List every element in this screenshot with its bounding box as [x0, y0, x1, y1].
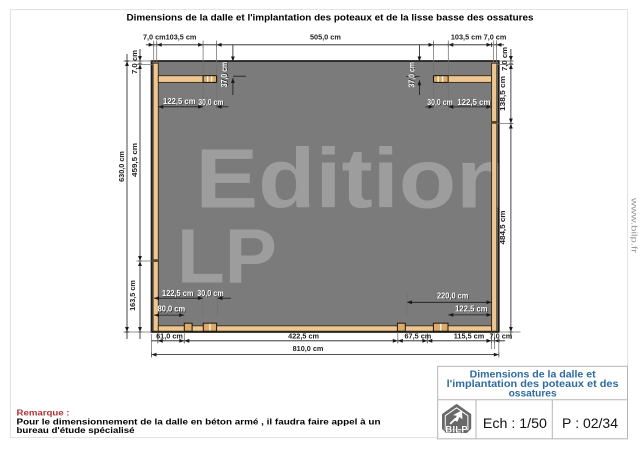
svg-text:37,0 cm: 37,0 cm — [407, 62, 416, 88]
svg-text:138,5 cm: 138,5 cm — [498, 75, 507, 111]
svg-text:459,5 cm: 459,5 cm — [130, 142, 139, 177]
svg-text:163,5 cm: 163,5 cm — [128, 280, 137, 311]
svg-text:61,0 cm: 61,0 cm — [156, 331, 183, 340]
svg-text:122,5 cm: 122,5 cm — [457, 98, 490, 107]
svg-text:7,0 cm: 7,0 cm — [143, 32, 166, 41]
svg-text:Remarque :: Remarque : — [17, 407, 70, 417]
svg-text:7,0 cm: 7,0 cm — [484, 32, 507, 41]
svg-text:P : 02/34: P : 02/34 — [562, 416, 619, 431]
svg-text:122,5 cm: 122,5 cm — [162, 289, 194, 298]
svg-text:630,0 cm: 630,0 cm — [117, 151, 126, 182]
svg-text:Ech : 1/50: Ech : 1/50 — [483, 416, 547, 431]
svg-text:80,0 cm: 80,0 cm — [158, 305, 186, 314]
svg-text:7,0 cm: 7,0 cm — [130, 49, 139, 74]
svg-text:30,0 cm: 30,0 cm — [198, 98, 223, 107]
svg-text:422,5 cm: 422,5 cm — [288, 331, 319, 340]
svg-text:LP: LP — [177, 214, 277, 300]
svg-text:103,5 cm: 103,5 cm — [166, 32, 197, 41]
svg-text:484,5 cm: 484,5 cm — [498, 210, 507, 245]
svg-text:30,0 cm: 30,0 cm — [427, 98, 453, 107]
svg-text:220,0 cm: 220,0 cm — [437, 291, 469, 300]
svg-text:7,0 cm: 7,0 cm — [490, 331, 513, 340]
svg-text:Dimensions de la dalle et l'im: Dimensions de la dalle et l'implantation… — [127, 12, 534, 22]
svg-text:122,5 cm: 122,5 cm — [163, 97, 196, 106]
svg-text:bureau d'étude spécialisé: bureau d'étude spécialisé — [17, 426, 136, 435]
svg-text:ossatures: ossatures — [509, 388, 557, 399]
svg-text:BILP: BILP — [445, 423, 468, 434]
svg-text:37,0 cm: 37,0 cm — [220, 62, 229, 88]
svg-text:7,0 cm: 7,0 cm — [500, 46, 509, 71]
svg-text:115,5 cm: 115,5 cm — [454, 331, 485, 340]
svg-text:Edition: Edition — [196, 132, 514, 226]
svg-text:505,0 cm: 505,0 cm — [310, 32, 341, 41]
svg-text:122,5 cm: 122,5 cm — [455, 304, 488, 313]
svg-text:810,0 cm: 810,0 cm — [293, 344, 324, 353]
svg-text:103,5 cm: 103,5 cm — [451, 32, 482, 41]
svg-text:www.bilp.fr: www.bilp.fr — [630, 197, 640, 254]
svg-text:Pour le dimensionnement de la: Pour le dimensionnement de la dalle en b… — [17, 417, 381, 426]
svg-text:67,5 cm: 67,5 cm — [405, 331, 432, 340]
svg-text:30,0 cm: 30,0 cm — [197, 289, 224, 298]
